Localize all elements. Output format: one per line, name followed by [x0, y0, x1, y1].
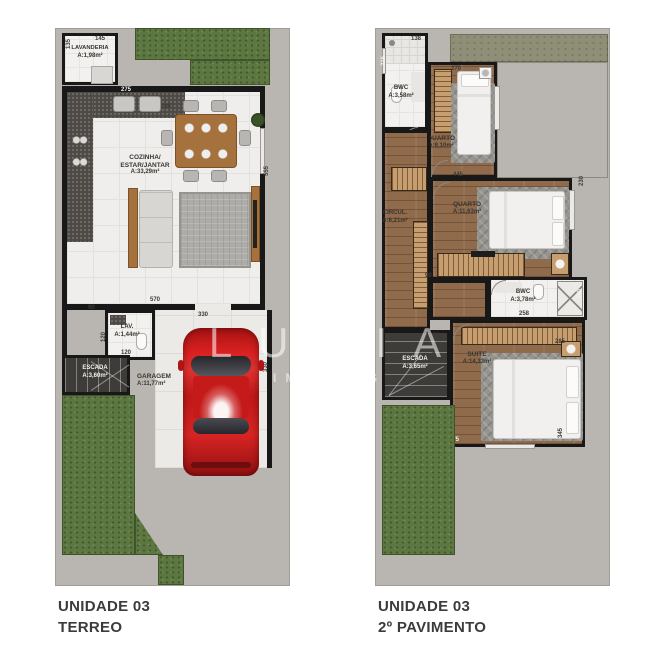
wall-garage-right [267, 310, 272, 468]
suite-blanket-fold [512, 360, 515, 438]
room-area: A:11,77m² [137, 381, 181, 389]
tv [253, 200, 257, 248]
room-name: ESCADA [65, 365, 125, 373]
quarto1-blanket-fold [458, 94, 490, 97]
room-name: SUITE [455, 351, 499, 359]
suite-pillow [566, 402, 579, 434]
sink-bowl-right [139, 96, 161, 112]
room-name: BWC [383, 85, 419, 93]
room-name: BWC [505, 289, 541, 297]
room-label-cozinha: COZINHA/ ESTAR/JANTAR A:33,29m² [107, 154, 183, 177]
sofa [139, 190, 173, 268]
caption-pavimento2: UNIDADE 03 2º PAVIMENTO [378, 596, 486, 638]
car-mirror-left [178, 360, 184, 371]
dim-garage-width: 330 [198, 312, 208, 318]
garden-bottom [62, 395, 135, 555]
caption-subtitle: 2º PAVIMENTO [378, 617, 486, 638]
room-area: A:3,78m² [505, 297, 541, 305]
dining-chair [161, 130, 173, 146]
dim-suite-wardrobe: 285 [555, 339, 565, 345]
dim-suite-height: 420 [432, 352, 438, 362]
room-label-quarto2: QUARTO A:11,63m² [447, 201, 487, 216]
quarto2-window [569, 190, 575, 230]
garden-upper-bottom [382, 405, 455, 555]
room-name: ESTAR/JANTAR [107, 162, 183, 170]
dining-table [175, 114, 237, 168]
car-windshield [191, 356, 251, 376]
room-area: A:11,63m² [447, 209, 487, 217]
dim-sink-wall: 275 [121, 87, 131, 93]
car-roof [193, 376, 249, 418]
room-area: A:33,29m² [107, 169, 183, 177]
room-bwc1 [382, 33, 428, 130]
garden-top-b [190, 60, 270, 85]
room-area: A:14,33m² [455, 359, 499, 367]
suite-pillow [566, 366, 579, 398]
shower-head [389, 40, 395, 46]
room-quarto2 [430, 178, 572, 280]
room-label-circul: CIRCUL. A:6,21m² [377, 210, 413, 225]
dim-bwc1-width: 138 [411, 36, 421, 42]
dining-chair [211, 100, 227, 112]
room-quarto1 [428, 62, 497, 178]
dim-kitchen-width: 295 [161, 104, 171, 110]
suite-bed [493, 359, 581, 439]
dim-lav-offset: 90 [88, 305, 95, 311]
cooktop [71, 132, 89, 172]
dim-quarto2-width: 445 [453, 172, 463, 178]
plan-terreo: 145 135 LAVANDERIA A:1,98m² 275 295 555 [55, 28, 290, 588]
car-mirror-right [258, 360, 264, 371]
dim-suite-bed-wall: 345 [558, 428, 564, 438]
dim-lavanderia-width: 145 [95, 36, 105, 42]
room-label-escada-terreo: ESCADA A:3,60m² [65, 365, 125, 380]
dim-kitchen-height: 555 [264, 166, 270, 176]
dim-quarto1-width: 270 [451, 66, 461, 72]
room-area: A:3,60m² [65, 373, 125, 381]
room-name: COZINHA/ [107, 154, 183, 162]
caption-title: UNIDADE 03 [58, 596, 150, 617]
dim-escada-width: 99 [433, 333, 440, 339]
dim-bwc2-height: 140 [577, 289, 583, 299]
car [183, 328, 259, 476]
plan-pavimento2: 138 215 BWC A:3,58m² 270 QUARTO A:8,10m²… [375, 28, 610, 588]
car-rear-glass [193, 418, 249, 434]
room-label-bwc1: BWC A:3,58m² [383, 85, 419, 100]
dining-chair [211, 170, 227, 182]
living-rug [179, 192, 251, 268]
dim-quarto2-height: 230 [579, 176, 585, 186]
quarto2-nightstand [551, 253, 569, 275]
quarto2-bed [489, 191, 565, 249]
quarto2-pillow [552, 196, 564, 220]
garden-bottom-tab [158, 555, 184, 585]
room-area: A:3,65m² [387, 364, 443, 372]
dim-bwc1-height: 215 [381, 56, 387, 66]
suite-window [485, 444, 535, 449]
quarto1-bed [457, 71, 491, 155]
quarto1-wardrobe [434, 69, 452, 133]
caption-title: UNIDADE 03 [378, 596, 486, 617]
room-name: QUARTO [447, 201, 487, 209]
room-area: A:6,21m² [377, 218, 413, 226]
dim-bwc2-width: 258 [519, 311, 529, 317]
caption-terreo: UNIDADE 03 TERREO [58, 596, 150, 638]
room-label-bwc2: BWC A:3,78m² [505, 289, 541, 304]
circul-shelf-top [391, 167, 427, 191]
room-name: LAVANDERIA [67, 45, 113, 53]
sink-bowl-left [113, 96, 135, 112]
room-area: A:3,58m² [383, 93, 419, 101]
room-label-suite: SUITE A:14,33m² [455, 351, 499, 366]
room-name: LAV. [107, 324, 147, 332]
room-label-lavanderia: LAVANDERIA A:1,98m² [67, 45, 113, 60]
lumia-logo-icon [301, 272, 349, 312]
dim-hall-offset: 90 [425, 273, 432, 279]
floorplan-canvas: 145 135 LAVANDERIA A:1,98m² 275 295 555 [0, 0, 650, 650]
room-name: GARAGEM [137, 373, 181, 381]
quarto2-tv [471, 251, 495, 257]
dining-chair [183, 100, 199, 112]
quarto2-blanket-fold [504, 192, 507, 248]
washer [91, 66, 113, 84]
terrace [497, 62, 608, 178]
room-label-garagem: GARAGEM A:11,77m² [137, 373, 181, 388]
plant [251, 113, 265, 127]
room-area: A:1,44m² [107, 332, 147, 340]
room-area: A:1,98m² [67, 53, 113, 61]
room-label-lav: LAV. A:1,44m² [107, 324, 147, 339]
dim-hall-width: 570 [150, 297, 160, 303]
room-name: CIRCUL. [377, 210, 413, 218]
roof-strip [450, 34, 608, 62]
dining-chair [239, 130, 251, 146]
dining-chair [183, 170, 199, 182]
room-circul [382, 130, 430, 330]
circul-shelf-side [413, 221, 428, 309]
sofa-console [128, 188, 138, 268]
garden-top-a [135, 28, 270, 60]
caption-subtitle: TERREO [58, 617, 150, 638]
quarto1-window [494, 86, 500, 130]
room-hall [430, 280, 488, 320]
car-taillights [191, 462, 251, 468]
quarto2-pillow [552, 222, 564, 246]
quarto1-ac-unit [479, 67, 492, 79]
